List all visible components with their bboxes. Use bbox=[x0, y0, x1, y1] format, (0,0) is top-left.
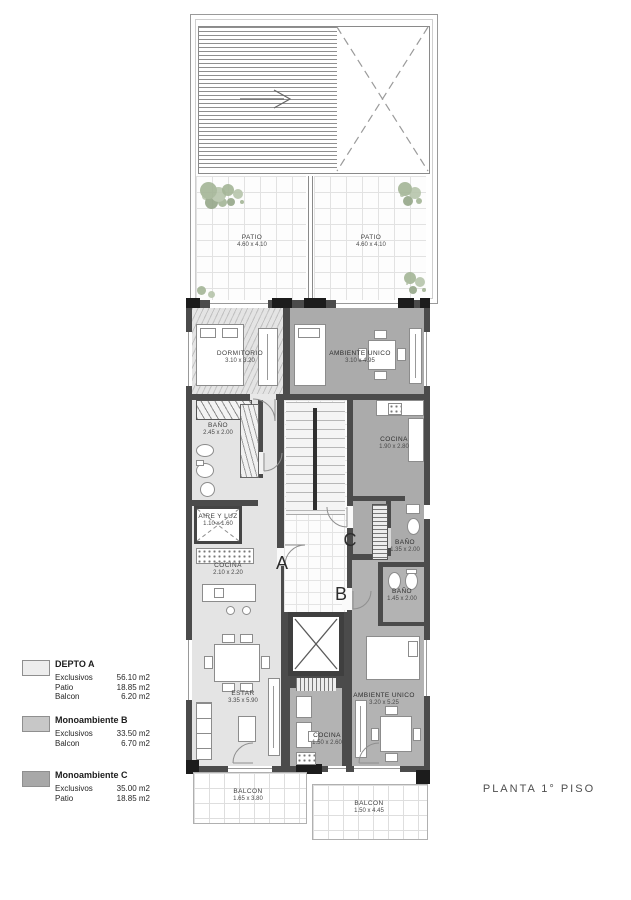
wall bbox=[378, 562, 424, 567]
plant-icon bbox=[404, 272, 416, 284]
legend-swatch-depto-a bbox=[22, 660, 50, 676]
legend-name: Monoambiente B bbox=[55, 715, 150, 725]
door-swing bbox=[252, 398, 276, 422]
door-swing bbox=[232, 742, 254, 764]
room-label-balcon-b: BALCON1.50 x 4.45 bbox=[354, 800, 384, 816]
tv-cabinet bbox=[268, 678, 280, 756]
stool bbox=[226, 606, 235, 615]
kitchen-counter bbox=[408, 418, 424, 462]
door-swing bbox=[352, 590, 372, 610]
chair bbox=[385, 753, 398, 762]
legend-row: Patio18.85 m2 bbox=[55, 794, 150, 804]
column bbox=[186, 298, 200, 308]
plant-icon bbox=[398, 182, 412, 196]
window bbox=[424, 332, 430, 386]
column bbox=[420, 298, 430, 308]
legend-unit-monoambiente-b: Monoambiente B Exclusivos33.50 m2 Balcon… bbox=[22, 715, 150, 748]
room-label-cocina-b: COCINA1.50 x 2.60 bbox=[312, 732, 342, 748]
door-swing bbox=[358, 742, 380, 764]
chair bbox=[413, 728, 421, 741]
column bbox=[398, 298, 414, 308]
pillow bbox=[200, 328, 216, 338]
sink bbox=[406, 504, 420, 514]
room-label-cocina-a: COCINA2.10 x 2.20 bbox=[213, 562, 243, 578]
legend-row: Exclusivos35.00 m2 bbox=[55, 784, 150, 794]
window bbox=[210, 300, 268, 308]
legend-row: Balcon6.20 m2 bbox=[55, 692, 150, 702]
room-label-bano-b: BAÑO1.45 x 2.00 bbox=[387, 588, 417, 604]
patio-divider-wall bbox=[308, 176, 313, 300]
wardrobe-line bbox=[415, 334, 416, 378]
toilet-tank bbox=[196, 460, 204, 466]
window bbox=[186, 332, 192, 386]
page-title: PLANTA 1° PISO bbox=[483, 783, 595, 795]
kitchen-counter bbox=[296, 696, 312, 718]
stove bbox=[388, 403, 402, 415]
door-swing bbox=[326, 506, 348, 528]
roof-direction-arrow-icon bbox=[240, 86, 300, 112]
staircase-rail bbox=[313, 408, 317, 510]
room-label-estar: ESTAR3.35 x 5.90 bbox=[228, 690, 258, 706]
room-label-patio-left: PATIO4.60 x 4.10 bbox=[237, 234, 267, 250]
unit-marker-c: C bbox=[344, 530, 357, 551]
wall bbox=[353, 496, 405, 501]
service-stair bbox=[296, 678, 336, 691]
stool bbox=[242, 606, 251, 615]
room-label-ambiente-unico-c: AMBIENTE UNICO3.10 x 4.95 bbox=[329, 350, 391, 366]
unit-marker-a: A bbox=[276, 553, 288, 574]
wardrobe-line bbox=[267, 334, 268, 380]
legend-name: Monoambiente C bbox=[55, 770, 150, 780]
window bbox=[328, 766, 346, 772]
roof-void-x-icon bbox=[337, 27, 428, 171]
column bbox=[416, 770, 430, 784]
chair bbox=[204, 656, 213, 669]
plant-icon bbox=[197, 286, 206, 295]
stove bbox=[214, 588, 224, 598]
plant-icon bbox=[200, 182, 217, 199]
wall bbox=[378, 622, 424, 626]
column bbox=[304, 298, 326, 308]
room-label-bano-c: BAÑO1.35 x 2.00 bbox=[390, 539, 420, 555]
legend-row: Exclusivos33.50 m2 bbox=[55, 729, 150, 739]
window bbox=[424, 640, 430, 696]
floor-plan-canvas: PATIO4.60 x 4.10 PATIO4.60 x 4.10 bbox=[0, 0, 631, 900]
chair bbox=[240, 634, 253, 643]
elevator-x-icon bbox=[295, 619, 337, 669]
room-label-aire-y-luz: AIRE Y LUZ1.10 x 1.60 bbox=[198, 513, 237, 529]
legend-unit-depto-a: DEPTO A Exclusivos56.10 m2 Patio18.85 m2… bbox=[22, 659, 150, 702]
plant-icon bbox=[222, 184, 234, 196]
legend-name: DEPTO A bbox=[55, 659, 150, 669]
chair bbox=[374, 330, 387, 339]
door-swing bbox=[263, 452, 283, 472]
chair bbox=[222, 634, 235, 643]
room-label-patio-right: PATIO4.60 x 4.10 bbox=[356, 234, 386, 250]
room-label-ambiente-unico-b: AMBIENTE UNICO3.20 x 5.25 bbox=[353, 692, 415, 708]
wall bbox=[378, 562, 383, 626]
bidet bbox=[196, 444, 214, 457]
kitchen-island bbox=[202, 584, 256, 602]
chair bbox=[374, 371, 387, 380]
legend-swatch-monoambiente-c bbox=[22, 771, 50, 787]
room-label-cocina-c: COCINA1.90 x 2.80 bbox=[379, 436, 409, 452]
toilet-tank bbox=[406, 569, 417, 574]
balcony-door bbox=[354, 766, 400, 772]
stair-to-roof bbox=[372, 504, 388, 560]
room-label-bano-a: BAÑO2.45 x 2.00 bbox=[203, 422, 233, 438]
legend-unit-monoambiente-c: Monoambiente C Exclusivos35.00 m2 Patio1… bbox=[22, 770, 150, 803]
column bbox=[272, 298, 292, 308]
window bbox=[424, 505, 430, 519]
room-label-balcon-a: BALCON1.65 x 3.80 bbox=[233, 788, 263, 804]
chair bbox=[371, 728, 379, 741]
room-label-dormitorio: DORMITORIO3.10 x 3.20 bbox=[217, 350, 263, 366]
chair bbox=[397, 348, 406, 361]
pillow bbox=[222, 328, 238, 338]
pillow bbox=[408, 641, 418, 657]
unit-marker-b: B bbox=[335, 584, 347, 605]
dining-table bbox=[214, 644, 260, 682]
toilet bbox=[407, 518, 420, 535]
stove bbox=[296, 752, 316, 765]
legend-row: Patio18.85 m2 bbox=[55, 683, 150, 693]
window bbox=[186, 640, 192, 700]
tv-cabinet-line bbox=[273, 686, 274, 748]
coffee-table bbox=[238, 716, 256, 742]
sofa bbox=[196, 702, 212, 760]
chair bbox=[261, 656, 270, 669]
legend-swatch-monoambiente-b bbox=[22, 716, 50, 732]
sink bbox=[200, 482, 215, 497]
pillow bbox=[298, 328, 320, 338]
table bbox=[380, 716, 412, 752]
legend-row: Balcon6.70 m2 bbox=[55, 739, 150, 749]
legend-row: Exclusivos56.10 m2 bbox=[55, 673, 150, 683]
